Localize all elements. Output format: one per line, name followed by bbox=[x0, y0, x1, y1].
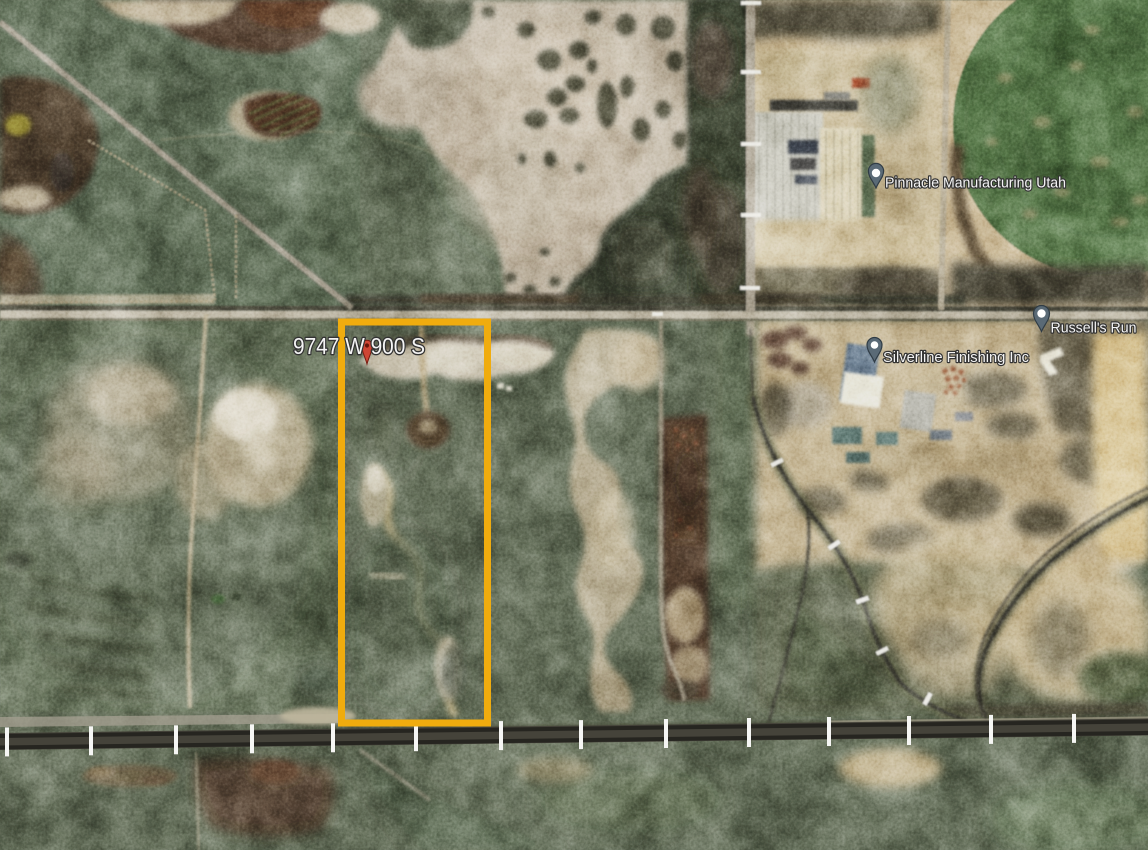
svg-text:9747 W 900 S: 9747 W 900 S bbox=[293, 333, 425, 359]
svg-text:Silverline Finishing Inc: Silverline Finishing Inc bbox=[883, 349, 1029, 366]
svg-text:Pinnacle Manufacturing Utah: Pinnacle Manufacturing Utah bbox=[885, 175, 1066, 192]
svg-text:Russell's Run: Russell's Run bbox=[1051, 320, 1137, 337]
